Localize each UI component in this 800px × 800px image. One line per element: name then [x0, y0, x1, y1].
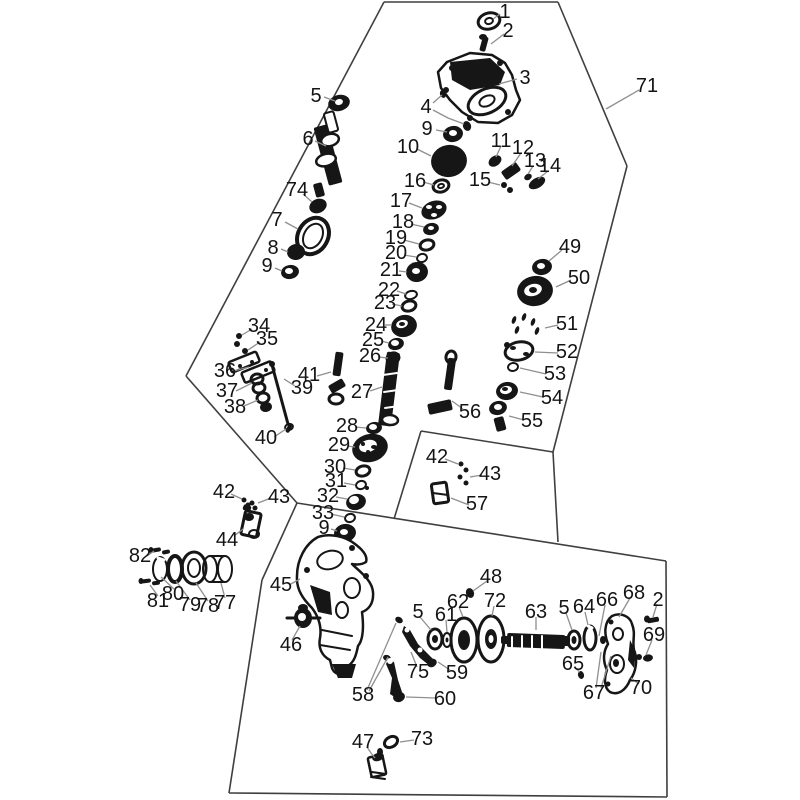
part-label-36: 36 — [214, 360, 236, 382]
part-label-14: 14 — [539, 155, 561, 177]
part-31-ring-shape — [365, 486, 369, 490]
part-35-screws-shape — [242, 348, 248, 354]
part-label-2: 2 — [502, 20, 513, 42]
part-label-17: 17 — [390, 190, 412, 212]
part-21-gear-shape — [412, 268, 420, 274]
part-label-65: 65 — [562, 653, 584, 675]
part-42-43-screws-box-shape — [464, 468, 469, 473]
part-label-53: 53 — [544, 363, 566, 385]
part-55-bolt-shape — [494, 404, 502, 410]
part-3-housing-shape — [467, 115, 473, 121]
part-3-housing-shape — [505, 109, 511, 115]
part-label-42: 42 — [213, 481, 235, 503]
part-label-81: 81 — [147, 590, 169, 612]
part-label-48: 48 — [480, 566, 502, 588]
part-52-plate-shape — [504, 342, 510, 348]
part-42-43-screws-box-shape — [458, 475, 463, 480]
part-63-output-shaft-shape — [501, 636, 509, 644]
part-label-66: 66 — [596, 589, 618, 611]
part-label-50: 50 — [568, 267, 590, 289]
part-45-case-shape — [363, 573, 369, 579]
part-18-collar-shape — [428, 226, 434, 230]
part-5-washer-a-shape — [432, 635, 438, 643]
part-label-15: 15 — [469, 169, 491, 191]
part-label-54: 54 — [541, 387, 563, 409]
part-label-4: 4 — [420, 96, 431, 118]
part-label-63: 63 — [525, 601, 547, 623]
part-label-9: 9 — [261, 255, 272, 277]
part-label-23: 23 — [374, 292, 396, 314]
part-label-77: 77 — [214, 592, 236, 614]
part-29-gear-shape — [371, 445, 377, 449]
part-45-case-shape — [304, 567, 310, 573]
part-label-69: 69 — [643, 624, 665, 646]
part-44-bracket-shape — [244, 513, 254, 521]
part-label-82: 82 — [129, 545, 151, 567]
part-68-cover-shape — [613, 659, 619, 667]
part-25-bushing-shape — [391, 340, 399, 346]
part-label-67: 67 — [583, 682, 605, 704]
part-label-5: 5 — [310, 85, 321, 107]
part-label-56: 56 — [459, 401, 481, 423]
part-72-pulley-shape — [489, 635, 494, 643]
part-label-43: 43 — [479, 463, 501, 485]
part-46-drain-bolt-shape — [298, 613, 306, 621]
part-label-44: 44 — [216, 529, 238, 551]
part-42-43-screws-left-shape — [250, 501, 255, 506]
part-17-gear-shape — [436, 205, 442, 209]
part-label-59: 59 — [446, 662, 468, 684]
part-29-gear-shape — [366, 450, 370, 454]
part-80-c-ring-shape — [158, 558, 164, 560]
part-75-lever-shape — [418, 648, 423, 653]
part-label-71: 71 — [636, 75, 658, 97]
part-label-43: 43 — [268, 486, 290, 508]
part-5-washer-b-shape — [572, 636, 577, 644]
part-46-drain-bolt-shape — [298, 604, 308, 612]
part-label-74: 74 — [286, 179, 308, 201]
part-label-38: 38 — [224, 396, 246, 418]
part-label-47: 47 — [352, 731, 374, 753]
part-label-5: 5 — [558, 597, 569, 619]
border-segment — [666, 561, 667, 797]
part-34-screws-shape — [236, 333, 242, 339]
part-60-lever-shape — [387, 658, 393, 664]
part-68-cover-shape — [609, 620, 614, 625]
part-label-9: 9 — [318, 517, 329, 539]
part-47-switch-shape — [377, 748, 383, 756]
part-24-gear-shape — [399, 322, 405, 326]
part-64-clip-shape — [588, 626, 592, 628]
part-17-gear-shape — [431, 213, 437, 217]
part-49-nut-shape — [537, 263, 545, 269]
part-label-72: 72 — [484, 590, 506, 612]
part-label-61: 61 — [435, 604, 457, 626]
part-label-45: 45 — [270, 574, 292, 596]
part-label-5: 5 — [412, 601, 423, 623]
part-label-73: 73 — [411, 728, 433, 750]
part-label-75: 75 — [407, 661, 429, 683]
part-36-plates-shape — [238, 364, 242, 368]
part-29-gear-shape — [361, 442, 365, 446]
part-81-screws-shape — [139, 578, 144, 584]
part-label-57: 57 — [466, 493, 488, 515]
diagram-background — [0, 0, 800, 800]
part-label-2: 2 — [652, 589, 663, 611]
part-label-52: 52 — [556, 341, 578, 363]
part-75-lever-shape — [405, 628, 410, 633]
part-label-26: 26 — [359, 345, 381, 367]
part-15-balls-shape — [501, 182, 507, 188]
part-63-output-shaft — [501, 633, 570, 649]
exploded-parts-diagram: 1237154961011121314161574177188199202122… — [0, 0, 800, 800]
part-54-bearing-shape — [502, 387, 508, 391]
part-42-43-screws-box-shape — [459, 462, 464, 467]
part-42-43-screws-box-shape — [464, 481, 469, 486]
part-15-balls-shape — [507, 187, 513, 193]
part-label-3: 3 — [519, 67, 530, 89]
part-42-43-screws-left-shape — [253, 506, 258, 511]
part-label-27: 27 — [351, 381, 373, 403]
part-label-70: 70 — [630, 677, 652, 699]
part-label-55: 55 — [521, 410, 543, 432]
part-61-washer-shape — [446, 638, 449, 643]
part-label-11: 11 — [491, 130, 512, 152]
part-52-plate-shape — [510, 346, 516, 350]
part-label-41: 41 — [298, 364, 320, 386]
part-9-nut-top-shape — [449, 130, 457, 136]
part-34-screws-shape — [234, 341, 240, 347]
part-label-10: 10 — [397, 136, 419, 158]
part-label-68: 68 — [623, 582, 645, 604]
part-label-42: 42 — [426, 446, 448, 468]
part-27-shaft-shape — [382, 414, 399, 425]
part-label-6: 6 — [302, 128, 313, 150]
part-42-43-screws-left-shape — [242, 498, 247, 503]
part-62-pulley-shape — [458, 630, 470, 650]
part-label-21: 21 — [380, 259, 402, 281]
part-label-46: 46 — [280, 634, 302, 656]
part-2-bolt-top-shape — [479, 34, 487, 40]
part-63-output-shaft-shape — [507, 633, 565, 649]
part-label-40: 40 — [255, 427, 277, 449]
diagram-page: 1237154961011121314161574177188199202122… — [0, 0, 800, 800]
part-9-nut-left-shape — [285, 268, 293, 274]
part-36-plates-shape — [264, 368, 268, 372]
part-68-cover-shape — [606, 682, 611, 687]
part-9-nut-bottom-shape — [340, 529, 348, 535]
part-label-51: 51 — [556, 313, 578, 335]
part-label-29: 29 — [328, 434, 350, 456]
part-label-49: 49 — [559, 236, 581, 258]
part-50-gear-shape — [529, 287, 537, 293]
part-label-60: 60 — [434, 688, 456, 710]
part-52-plate-shape — [523, 352, 529, 356]
part-label-9: 9 — [421, 118, 432, 140]
part-28-bushing-shape — [369, 424, 377, 430]
part-45-case-shape — [349, 545, 355, 551]
part-label-7: 7 — [271, 209, 282, 231]
part-36-plates-shape — [250, 360, 254, 364]
part-3-housing-shape — [449, 65, 455, 71]
part-label-58: 58 — [352, 684, 374, 706]
part-label-16: 16 — [404, 170, 426, 192]
part-3-housing-shape — [497, 60, 503, 66]
part-2-bolt-bottom-shape — [644, 616, 650, 623]
part-label-64: 64 — [573, 596, 595, 618]
part-39-rod-shape — [269, 361, 275, 367]
part-label-35: 35 — [256, 328, 278, 350]
part-17-gear-shape — [426, 205, 432, 209]
